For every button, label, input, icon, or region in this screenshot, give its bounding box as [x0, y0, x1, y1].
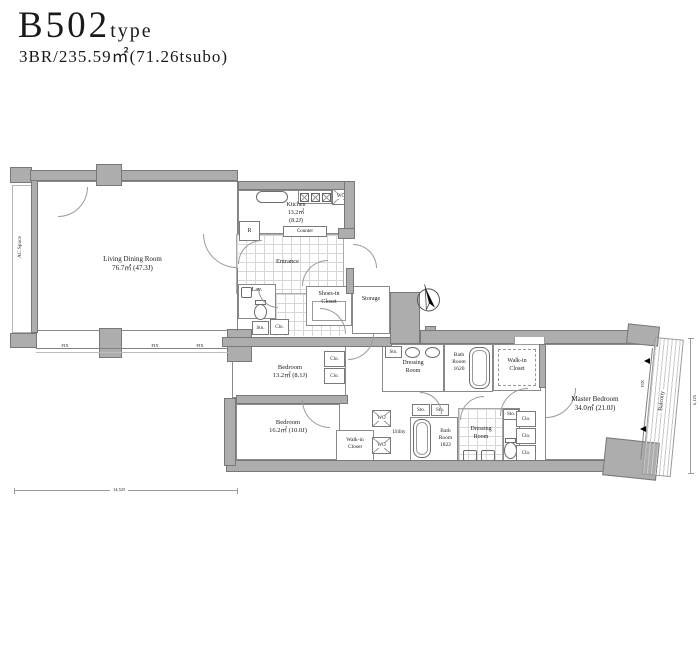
wall-south-column-mid [99, 328, 122, 358]
walkin-small-label: Walk-inCloset [337, 437, 373, 451]
counter-box: Counter [283, 226, 327, 237]
wo-box-utility: WO [372, 437, 391, 454]
bedroom2-label: Bedroom16.2㎡ (10.0J) [240, 419, 336, 436]
room-ac-space: AC Space [12, 185, 32, 333]
wall-top-left-block [10, 167, 32, 183]
partition-living-hall-lower [237, 268, 238, 331]
dimension-line-bottom: 14,525 [14, 490, 238, 491]
dimension-line-right: 6,125 [690, 338, 691, 474]
door-arc-bedroom1 [348, 334, 374, 360]
fix-window-label-master: FIX [640, 380, 645, 387]
dimension-right-value: 6,125 [692, 393, 697, 407]
burner-icon [300, 193, 309, 202]
sto-box-lav: Sto. [252, 321, 269, 335]
wall-living-left [31, 180, 38, 333]
wall-wing-bottom [226, 460, 618, 472]
lav-label: Lav. [244, 287, 270, 295]
burner-icon [322, 193, 331, 202]
fix-window-label: FIX [185, 343, 215, 349]
sto-box-dressing-a: Sto. [385, 346, 402, 358]
door-arc-walkin-large [500, 388, 528, 416]
door-arc-dressing-b [460, 396, 484, 420]
door-arc-dressing-a [420, 392, 442, 414]
shoes-closet-label: Shoes-inCloset [306, 291, 352, 307]
floor-plan: AC Space WO R Counter Sto. Clo. C [0, 0, 700, 650]
wall-kitchen-right [344, 181, 355, 233]
wall-master-left [539, 344, 546, 388]
refrigerator-box: R [239, 221, 260, 241]
wall-bedroom-left [224, 398, 236, 466]
window-vent-marker [644, 358, 650, 364]
fix-window-label: FIX [50, 343, 80, 349]
dressing-a-label: DressingRoom [388, 360, 438, 376]
wall-ac-bottom-block [10, 333, 37, 348]
kitchen-label: Kitchen13.2㎡(8.2J) [266, 202, 326, 225]
walkin-large-label: Walk-inCloset [496, 358, 538, 374]
room-storage [352, 286, 390, 334]
ac-space-label: AC Space [17, 236, 23, 258]
balcony-label: Balcony [658, 389, 666, 413]
wall-kitchen-top [238, 181, 355, 190]
bathtub-b [413, 419, 431, 458]
wo-box-utility: WO [372, 410, 391, 427]
wall-living-top [30, 170, 238, 181]
clo-box-hall: Clo. [270, 319, 289, 335]
door-arc-entrance [353, 244, 377, 268]
bedroom1-label: Bedroom13.2㎡ (8.1J) [240, 364, 340, 381]
living-room-label: Living Dining Room76.7㎡ (47.3J) [60, 255, 205, 273]
utility-label: Utility [383, 430, 415, 437]
wall-wing-top-bump [425, 326, 436, 331]
bath-b-label: BathRoom1822 [433, 428, 458, 449]
dimension-bottom-value: 14,525 [110, 487, 128, 493]
living-window-line2 [36, 352, 228, 353]
burner-icon [311, 193, 320, 202]
dressing-a-sink [425, 347, 440, 358]
partition-living-hall-upper [237, 181, 238, 234]
wall-bedroom-divider [236, 395, 348, 404]
entrance-label: Entrance [255, 258, 320, 266]
clo-box-master: Clo. [516, 445, 536, 461]
dressing-b-label: DressingRoom [462, 426, 500, 442]
storage-label: Storage [352, 296, 390, 304]
bathtub-a [469, 347, 490, 389]
dressing-a-sink [405, 347, 420, 358]
clo-box-master: Clo. [516, 428, 536, 444]
wall-top-column [96, 164, 122, 186]
fix-window-label: FIX [140, 343, 170, 349]
wall-kitchen-jog [338, 228, 355, 239]
master-bedroom-label: Master Bedroom34.0㎡ (21.0J) [540, 395, 650, 413]
bath-a-label: BathRoom1620 [446, 352, 472, 373]
